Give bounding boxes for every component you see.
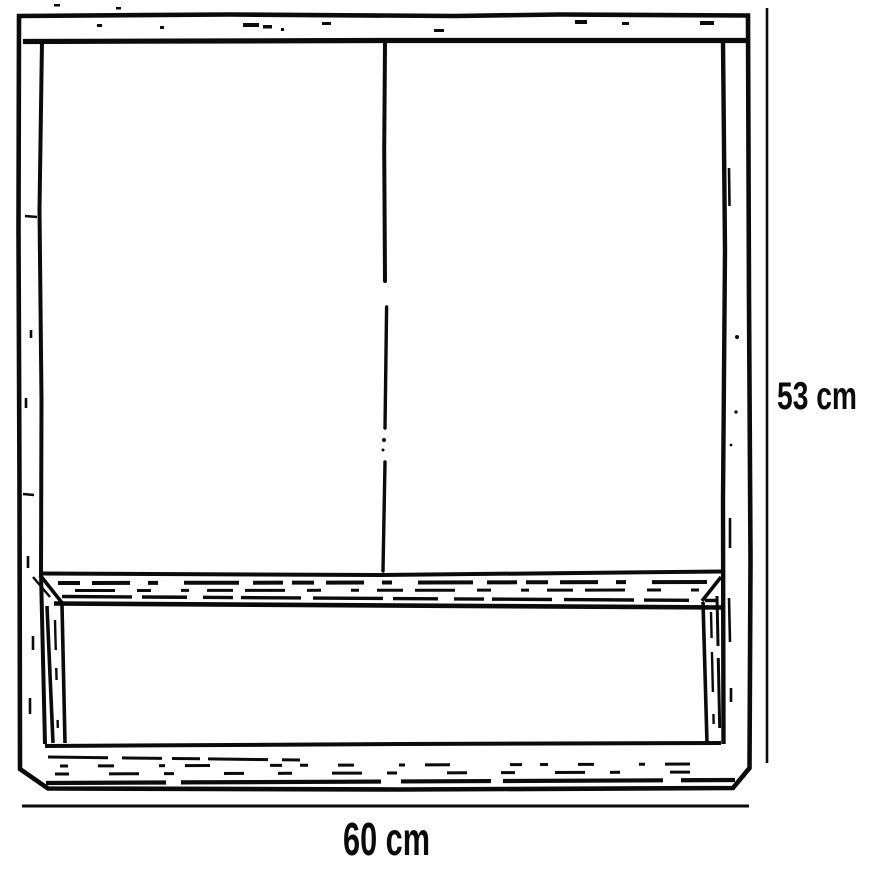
bottom-rail: [45, 743, 735, 783]
top-bar-specks: [54, 4, 739, 446]
door-divider-upper-segment: [384, 44, 385, 281]
frame-right-inner-edge: [723, 41, 725, 744]
right-post-left-edge: [703, 602, 707, 743]
bottom-rail-top-edge: [45, 743, 721, 746]
right-post-right-edge: [717, 596, 720, 743]
door-divider-middle-segment: [385, 307, 387, 428]
height-dimension: 53 cm: [767, 8, 857, 763]
bottom-rail-texture-row1: [60, 764, 710, 766]
shelf-rail-texture-row2: [75, 590, 700, 591]
frame-left-inner-edge: [40, 41, 46, 744]
door-divider-lower-segment: [383, 462, 385, 571]
right-post-texture: [711, 612, 714, 738]
cabinet-line-drawing: 53 cm 60 cm: [0, 0, 880, 870]
left-post-left-edge: [47, 606, 53, 743]
left-post-right-edge: [62, 605, 65, 743]
dimension-diagram: 53 cm 60 cm: [0, 0, 880, 870]
left-shelf-post: [33, 575, 65, 743]
bottom-rail-lower-line: [46, 780, 735, 783]
left-post-texture: [55, 620, 58, 735]
door-divider: [382, 44, 387, 571]
height-dimension-label: 53 cm: [777, 375, 857, 418]
stile-sketch-strokes: [23, 168, 731, 714]
shelf-rail-bottom-edge: [54, 604, 722, 608]
bottom-rail-texture-row2: [55, 772, 720, 774]
frame-top-inner-edge: [23, 41, 748, 42]
shelf-rail-texture-row1: [58, 582, 716, 583]
shelf-top-rail: [42, 572, 722, 608]
width-dimension: 60 cm: [22, 806, 749, 865]
door-divider-dots: [382, 438, 387, 452]
width-dimension-label: 60 cm: [343, 813, 430, 865]
shelf-rail-texture-row3: [62, 597, 718, 601]
bottom-rail-inner-line: [48, 757, 300, 760]
